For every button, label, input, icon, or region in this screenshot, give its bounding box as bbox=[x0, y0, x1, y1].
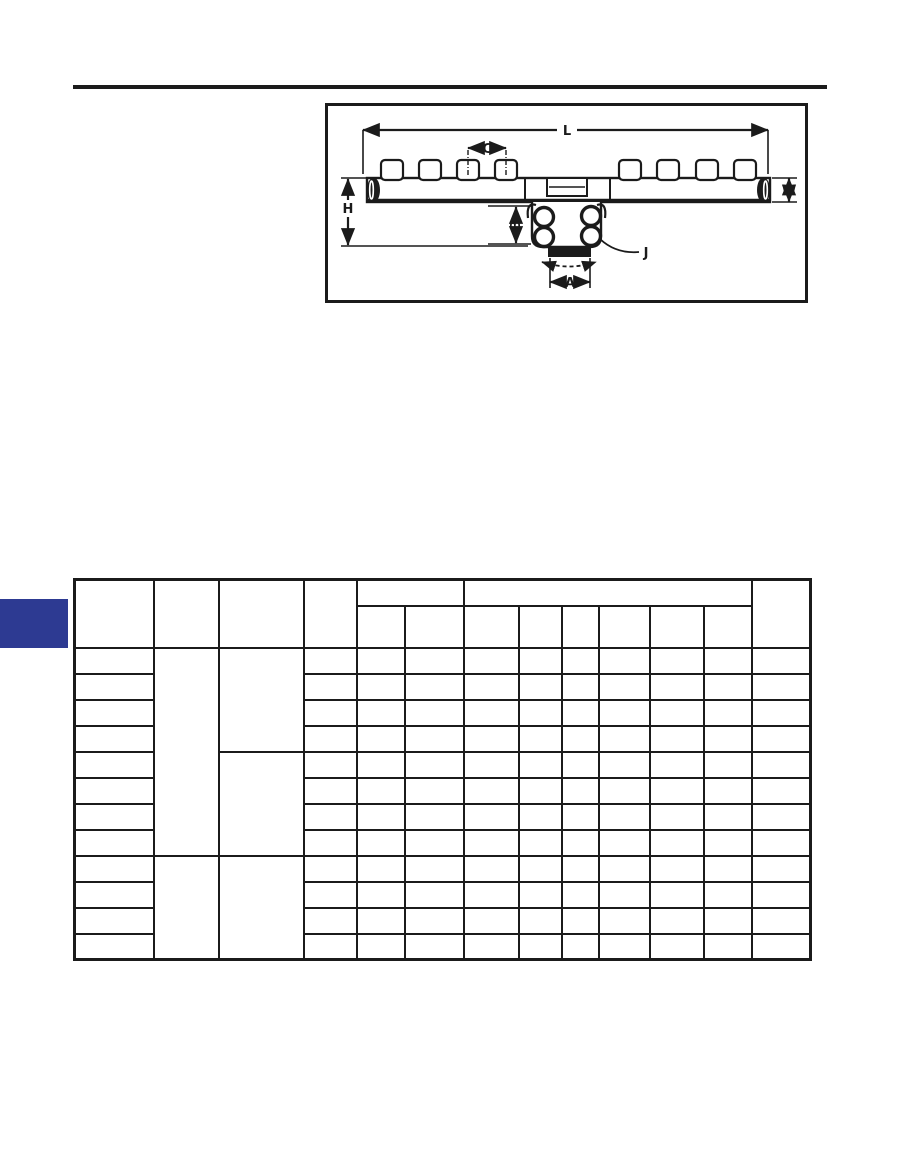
empty-cell bbox=[650, 726, 704, 752]
empty-cell bbox=[357, 778, 405, 804]
empty-cell bbox=[304, 856, 357, 882]
empty-cell bbox=[304, 648, 357, 674]
empty-cell bbox=[752, 648, 811, 674]
empty-cell bbox=[650, 882, 704, 908]
empty-cell bbox=[405, 830, 464, 856]
empty-cell bbox=[519, 778, 562, 804]
empty-cell bbox=[304, 934, 357, 960]
dim-label-b: B bbox=[509, 220, 524, 230]
empty-cell bbox=[519, 856, 562, 882]
empty-cell bbox=[304, 674, 357, 700]
empty-cell bbox=[752, 726, 811, 752]
empty-cell bbox=[464, 648, 519, 674]
empty-cell bbox=[357, 830, 405, 856]
empty-cell bbox=[357, 726, 405, 752]
empty-cell bbox=[519, 674, 562, 700]
empty-cell bbox=[405, 606, 464, 648]
empty-cell bbox=[304, 700, 357, 726]
empty-cell bbox=[357, 804, 405, 830]
empty-cell bbox=[752, 934, 811, 960]
empty-cell bbox=[75, 856, 154, 882]
empty-cell bbox=[219, 648, 304, 752]
empty-cell bbox=[464, 934, 519, 960]
empty-cell bbox=[405, 882, 464, 908]
empty-cell bbox=[704, 778, 752, 804]
empty-cell bbox=[562, 752, 599, 778]
empty-cell bbox=[75, 908, 154, 934]
empty-cell bbox=[219, 580, 304, 648]
empty-cell bbox=[752, 882, 811, 908]
empty-cell bbox=[562, 908, 599, 934]
empty-cell bbox=[75, 804, 154, 830]
empty-cell bbox=[357, 580, 464, 606]
empty-cell bbox=[464, 778, 519, 804]
empty-cell bbox=[464, 674, 519, 700]
empty-cell bbox=[704, 700, 752, 726]
empty-cell bbox=[405, 778, 464, 804]
empty-cell bbox=[357, 606, 405, 648]
empty-cell bbox=[562, 606, 599, 648]
empty-cell bbox=[357, 674, 405, 700]
empty-cell bbox=[650, 606, 704, 648]
dim-label-j: J bbox=[643, 246, 649, 261]
empty-cell bbox=[519, 726, 562, 752]
dimension-diagram: L C H W B J A bbox=[325, 103, 808, 303]
empty-cell bbox=[704, 648, 752, 674]
empty-cell bbox=[752, 580, 811, 648]
empty-cell bbox=[464, 830, 519, 856]
empty-cell bbox=[599, 700, 650, 726]
empty-cell bbox=[219, 856, 304, 960]
empty-cell bbox=[464, 804, 519, 830]
empty-cell bbox=[75, 882, 154, 908]
empty-cell bbox=[562, 726, 599, 752]
empty-cell bbox=[405, 726, 464, 752]
empty-cell bbox=[650, 752, 704, 778]
empty-cell bbox=[650, 856, 704, 882]
empty-cell bbox=[464, 752, 519, 778]
empty-cell bbox=[562, 648, 599, 674]
empty-cell bbox=[357, 856, 405, 882]
empty-cell bbox=[519, 804, 562, 830]
empty-cell bbox=[562, 830, 599, 856]
empty-cell bbox=[405, 856, 464, 882]
empty-cell bbox=[154, 580, 219, 648]
empty-cell bbox=[704, 674, 752, 700]
empty-cell bbox=[519, 752, 562, 778]
empty-cell bbox=[562, 778, 599, 804]
empty-cell bbox=[464, 580, 752, 606]
empty-cell bbox=[405, 700, 464, 726]
empty-cell bbox=[405, 674, 464, 700]
empty-cell bbox=[599, 882, 650, 908]
empty-cell bbox=[704, 804, 752, 830]
empty-cell bbox=[650, 908, 704, 934]
empty-cell bbox=[519, 648, 562, 674]
empty-cell bbox=[75, 580, 154, 648]
spec-table bbox=[73, 578, 812, 961]
empty-cell bbox=[75, 674, 154, 700]
empty-cell bbox=[599, 606, 650, 648]
top-rule bbox=[73, 85, 827, 89]
empty-cell bbox=[704, 856, 752, 882]
empty-cell bbox=[519, 934, 562, 960]
empty-cell bbox=[650, 674, 704, 700]
empty-cell bbox=[599, 934, 650, 960]
empty-cell bbox=[562, 856, 599, 882]
dim-label-c: C bbox=[482, 142, 492, 157]
empty-cell bbox=[75, 726, 154, 752]
empty-cell bbox=[752, 804, 811, 830]
empty-cell bbox=[304, 726, 357, 752]
empty-cell bbox=[599, 778, 650, 804]
empty-cell bbox=[519, 700, 562, 726]
empty-cell bbox=[304, 752, 357, 778]
empty-cell bbox=[599, 856, 650, 882]
empty-cell bbox=[650, 700, 704, 726]
empty-cell bbox=[357, 934, 405, 960]
empty-cell bbox=[599, 830, 650, 856]
dim-label-w: W bbox=[782, 184, 796, 199]
empty-cell bbox=[75, 934, 154, 960]
empty-cell bbox=[154, 856, 219, 960]
empty-cell bbox=[405, 752, 464, 778]
dim-label-l: L bbox=[563, 124, 571, 139]
empty-cell bbox=[752, 830, 811, 856]
empty-cell bbox=[752, 856, 811, 882]
empty-cell bbox=[405, 934, 464, 960]
empty-cell bbox=[405, 804, 464, 830]
empty-cell bbox=[154, 648, 219, 856]
empty-cell bbox=[752, 908, 811, 934]
empty-cell bbox=[599, 908, 650, 934]
empty-cell bbox=[75, 648, 154, 674]
empty-cell bbox=[464, 856, 519, 882]
empty-cell bbox=[650, 804, 704, 830]
empty-cell bbox=[599, 752, 650, 778]
empty-cell bbox=[599, 804, 650, 830]
empty-cell bbox=[405, 648, 464, 674]
empty-cell bbox=[650, 830, 704, 856]
empty-cell bbox=[75, 752, 154, 778]
empty-cell bbox=[304, 830, 357, 856]
empty-cell bbox=[752, 674, 811, 700]
empty-cell bbox=[562, 700, 599, 726]
empty-cell bbox=[519, 882, 562, 908]
empty-cell bbox=[519, 606, 562, 648]
table-header bbox=[75, 580, 811, 648]
empty-cell bbox=[562, 882, 599, 908]
empty-cell bbox=[562, 674, 599, 700]
empty-cell bbox=[562, 934, 599, 960]
empty-cell bbox=[304, 908, 357, 934]
empty-cell bbox=[405, 908, 464, 934]
empty-cell bbox=[464, 908, 519, 934]
dim-label-a: A bbox=[565, 276, 575, 291]
empty-cell bbox=[357, 908, 405, 934]
table-body bbox=[75, 648, 811, 960]
empty-cell bbox=[75, 830, 154, 856]
empty-cell bbox=[752, 752, 811, 778]
manifold-drawing: L C H W B J A bbox=[328, 106, 805, 300]
empty-cell bbox=[357, 648, 405, 674]
empty-cell bbox=[75, 700, 154, 726]
empty-cell bbox=[704, 934, 752, 960]
empty-cell bbox=[752, 778, 811, 804]
empty-cell bbox=[599, 726, 650, 752]
empty-cell bbox=[650, 778, 704, 804]
empty-cell bbox=[304, 580, 357, 648]
dim-label-h: H bbox=[343, 202, 354, 217]
empty-cell bbox=[704, 752, 752, 778]
empty-cell bbox=[464, 700, 519, 726]
empty-cell bbox=[599, 674, 650, 700]
empty-cell bbox=[357, 752, 405, 778]
empty-cell bbox=[704, 830, 752, 856]
empty-cell bbox=[304, 882, 357, 908]
empty-cell bbox=[519, 908, 562, 934]
empty-cell bbox=[704, 908, 752, 934]
empty-cell bbox=[304, 778, 357, 804]
empty-cell bbox=[464, 882, 519, 908]
empty-cell bbox=[519, 830, 562, 856]
empty-cell bbox=[704, 606, 752, 648]
empty-cell bbox=[752, 700, 811, 726]
empty-cell bbox=[464, 726, 519, 752]
empty-cell bbox=[704, 726, 752, 752]
empty-cell bbox=[704, 882, 752, 908]
empty-cell bbox=[599, 648, 650, 674]
empty-cell bbox=[219, 752, 304, 856]
empty-cell bbox=[650, 934, 704, 960]
document-page: L C H W B J A bbox=[0, 0, 905, 1175]
empty-cell bbox=[650, 648, 704, 674]
section-tab bbox=[0, 599, 68, 648]
empty-cell bbox=[357, 700, 405, 726]
empty-cell bbox=[562, 804, 599, 830]
empty-cell bbox=[357, 882, 405, 908]
empty-cell bbox=[304, 804, 357, 830]
empty-cell bbox=[75, 778, 154, 804]
empty-cell bbox=[464, 606, 519, 648]
